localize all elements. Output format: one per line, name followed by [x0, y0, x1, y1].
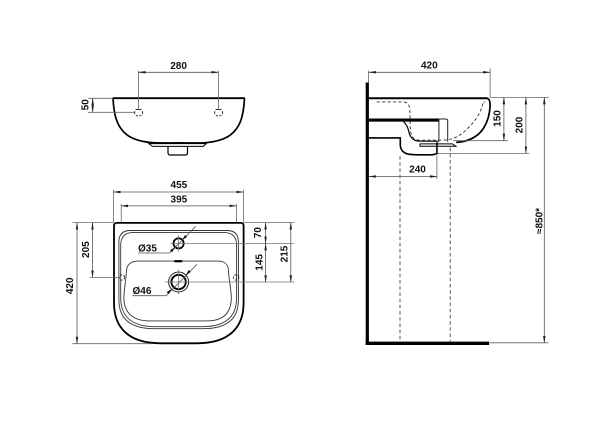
- svg-text:≈850*: ≈850*: [534, 208, 545, 234]
- svg-text:420: 420: [65, 277, 76, 294]
- svg-text:145: 145: [255, 254, 266, 271]
- svg-text:70: 70: [253, 227, 264, 239]
- svg-text:200: 200: [514, 116, 525, 133]
- svg-text:280: 280: [170, 61, 187, 72]
- svg-text:455: 455: [171, 180, 188, 191]
- svg-text:150: 150: [492, 110, 503, 127]
- svg-text:395: 395: [171, 195, 188, 206]
- svg-text:240: 240: [409, 165, 426, 176]
- svg-text:420: 420: [421, 61, 438, 72]
- svg-text:215: 215: [280, 245, 291, 262]
- svg-text:Ø46: Ø46: [133, 286, 152, 297]
- svg-text:205: 205: [81, 241, 92, 258]
- svg-text:Ø35: Ø35: [138, 243, 157, 254]
- svg-text:50: 50: [81, 99, 92, 111]
